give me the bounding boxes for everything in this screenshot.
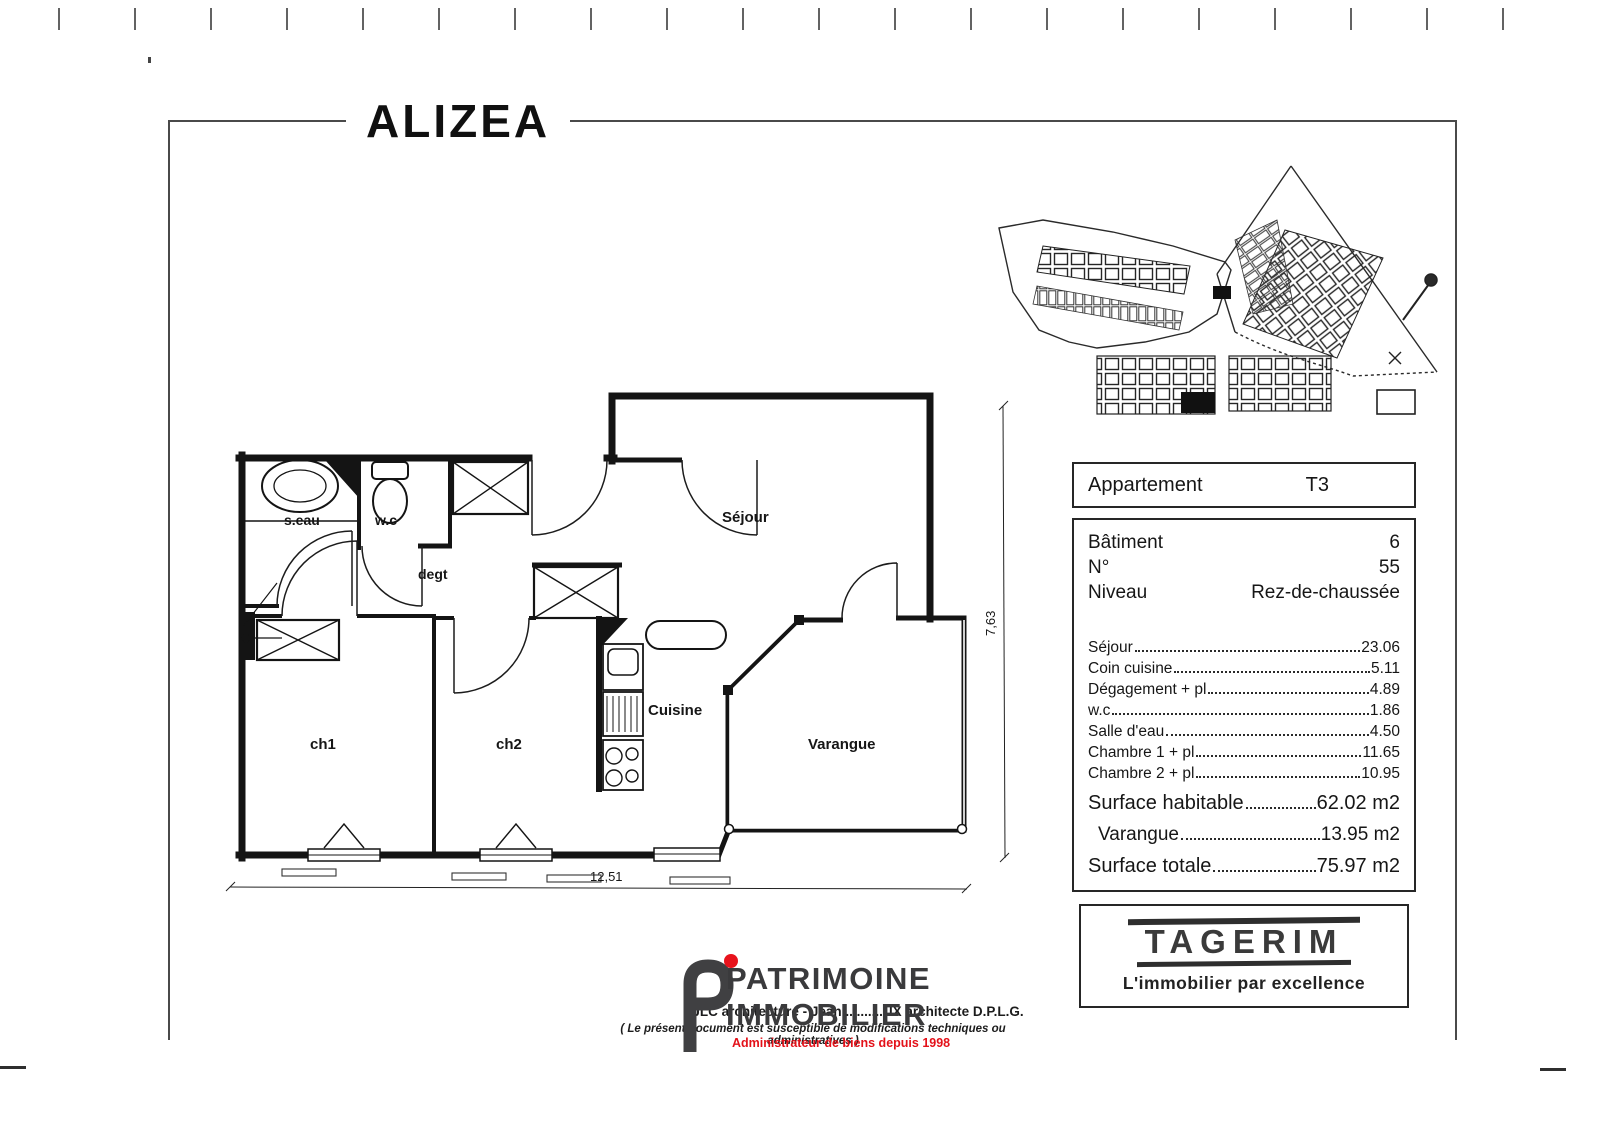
dimension-height-label: 7,63: [983, 611, 998, 636]
brand-name-line1: PATRIMOINE: [726, 962, 931, 996]
info-label: Bâtiment: [1088, 530, 1163, 555]
info-row: Bâtiment 6: [1088, 530, 1400, 555]
doors: [277, 460, 897, 693]
agency-box: TAGERIM L'immobilier par excellence: [1079, 904, 1409, 1008]
site-plan: [985, 162, 1440, 417]
agency-bar-bottom: [1137, 960, 1351, 967]
info-label: Niveau: [1088, 580, 1147, 605]
total-row-habitable: Surface habitable62.02 m2: [1088, 792, 1400, 815]
info-row: N° 55: [1088, 555, 1400, 580]
detail-box: Bâtiment 6 N° 55 Niveau Rez-de-chaussée …: [1072, 518, 1416, 892]
apartment-label: Appartement: [1088, 474, 1203, 497]
room-label-ch2: ch2: [496, 736, 522, 753]
area-row: Séjour 23.06: [1088, 637, 1400, 658]
windows: [282, 824, 730, 884]
agency-name: TAGERIM: [1145, 925, 1344, 959]
brand-subtitle: Administrateur de biens depuis 1998: [732, 1036, 950, 1050]
shower-corner: [325, 460, 359, 498]
highlighted-unit: [1181, 392, 1215, 413]
info-value: 6: [1389, 530, 1400, 555]
info-value: Rez-de-chaussée: [1251, 580, 1400, 605]
area-row: w.c1.86: [1088, 700, 1400, 721]
scan-edge-mark-right: [1540, 1068, 1566, 1071]
agency-tagline: L'immobilier par excellence: [1123, 973, 1365, 994]
room-label-cuisine: Cuisine: [648, 702, 702, 719]
north-arrow-icon: [1389, 274, 1437, 364]
site-buildings: [1033, 220, 1415, 414]
closets: [257, 462, 618, 660]
area-row: Dégagement + pl4.89: [1088, 679, 1400, 700]
area-row: Salle d'eau4.50: [1088, 721, 1400, 742]
info-label: N°: [1088, 555, 1109, 580]
apartment-type: T3: [1306, 474, 1329, 497]
info-panel: Appartement T3 Bâtiment 6 N° 55 Niveau R…: [1072, 462, 1416, 1008]
room-label-degt: degt: [418, 566, 448, 582]
floor-plan: s.eau w.c degt Séjour ch1 ch2 Cuisine Va…: [222, 388, 1017, 908]
info-value: 55: [1379, 555, 1400, 580]
wall-post: [239, 612, 255, 660]
page-title: ALIZEA: [346, 94, 570, 148]
footer: JLC architecture - Jean ..........UX arc…: [598, 952, 1118, 1072]
scan-dot: [148, 57, 151, 63]
area-row: Coin cuisine5.11: [1088, 658, 1400, 679]
area-row: Chambre 1 + pl11.65: [1088, 742, 1400, 763]
highlighted-building: [1213, 286, 1231, 299]
room-label-sejour: Séjour: [722, 509, 769, 526]
room-label-ch1: ch1: [310, 736, 336, 753]
varangue-walls: [723, 615, 967, 834]
room-label-varangue: Varangue: [808, 736, 876, 753]
total-row-totale: Surface totale75.97 m2: [1088, 855, 1400, 878]
scan-tick-marks: [58, 8, 1506, 30]
brand-name-line2: IMMOBILIER: [726, 998, 927, 1032]
apartment-box: Appartement T3: [1072, 462, 1416, 508]
info-row: Niveau Rez-de-chaussée: [1088, 580, 1400, 605]
dimension-width-label: 12,51: [590, 869, 623, 884]
scan-edge-mark-left: [0, 1066, 26, 1069]
room-label-seau: s.eau: [284, 512, 320, 528]
total-row-varangue: Varangue13.95 m2: [1088, 824, 1400, 846]
room-label-wc: w.c: [374, 512, 397, 528]
area-row: Chambre 2 + pl10.95: [1088, 763, 1400, 784]
